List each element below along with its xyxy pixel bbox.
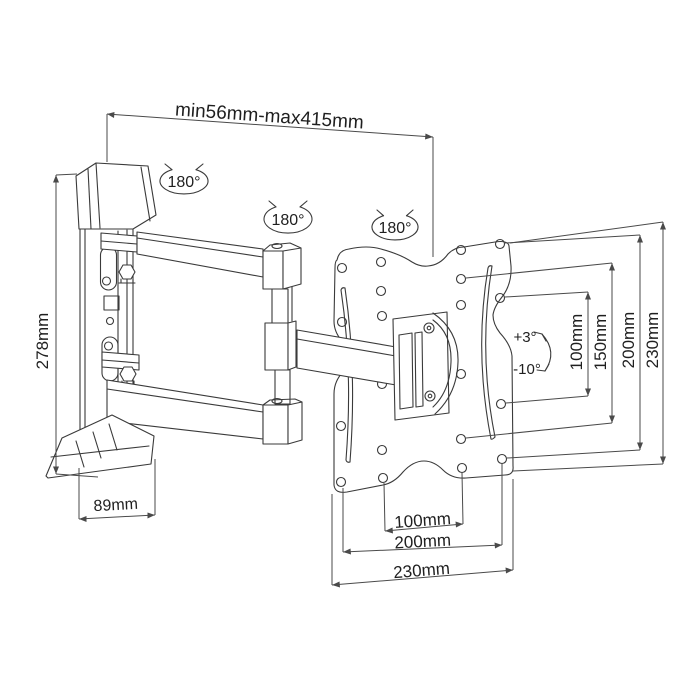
- label-plate-h-230: 230mm: [393, 559, 451, 582]
- label-swivel-2: 180°: [271, 212, 304, 229]
- keyhole-slot-top: [101, 247, 117, 290]
- pivot-top-block: [263, 243, 301, 289]
- pivot-middle-block: [265, 321, 296, 370]
- label-vesa-v-230: 230mm: [643, 312, 662, 369]
- label-tilt-down: -10°: [513, 361, 541, 378]
- diagram-canvas: min56mm-max415mm 180° 180° 180° 278mm 89…: [0, 0, 700, 700]
- articulating-arm: [46, 232, 302, 478]
- tilt-hinge: [393, 312, 458, 420]
- label-vesa-v-200: 200mm: [619, 312, 638, 369]
- label-vesa-v-100: 100mm: [567, 314, 586, 371]
- label-plate-h-100: 100mm: [394, 509, 452, 532]
- label-swivel-1: 180°: [167, 174, 200, 191]
- label-tilt-up: +3°: [513, 329, 536, 346]
- pivot-upper-column: [272, 289, 288, 323]
- tv-wall-mount-dimension-diagram: min56mm-max415mm 180° 180° 180° 278mm 89…: [0, 0, 700, 700]
- label-extension-range: min56mm-max415mm: [174, 99, 364, 133]
- label-plate-h-200: 200mm: [394, 531, 452, 553]
- label-swivel-3: 180°: [378, 220, 411, 237]
- rect-hole: [104, 296, 119, 310]
- label-vesa-v-150: 150mm: [591, 314, 610, 371]
- label-bracket-depth: 89mm: [93, 496, 138, 515]
- round-hole: [107, 318, 114, 325]
- pivot-bottom-block: [263, 399, 302, 445]
- label-bracket-height: 278mm: [33, 313, 52, 370]
